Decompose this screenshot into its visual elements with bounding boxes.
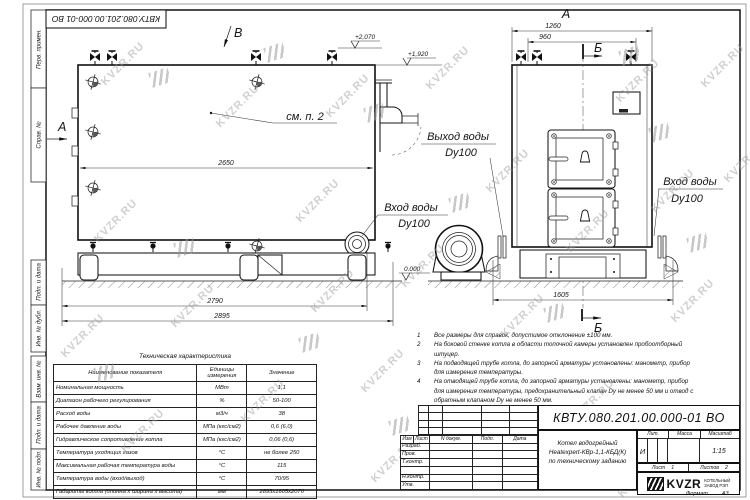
sheets-value: 2	[725, 465, 728, 471]
param-name: Габариты котла (длинна х ширина х высота…	[54, 486, 197, 499]
note-text: На боковой стенке котла в области топочн…	[434, 340, 695, 359]
note-item: 3На подводящей трубе котла, до запорной …	[417, 359, 695, 378]
tech-col-header: Единицы измерения	[197, 365, 247, 382]
param-unit: МПа (кгс/см2)	[197, 434, 247, 447]
hinge	[613, 142, 618, 149]
water-outlet-label: Выход воды	[427, 131, 489, 143]
product-name-line: Heatexpert-КВр-1,1-КБД(К)	[539, 448, 636, 457]
top-stamp-number: КВТУ.080.201.00.000-01 ВО	[51, 14, 160, 24]
rev-header: Лист	[413, 436, 429, 444]
ground-hatch	[62, 281, 402, 288]
front-view-title: А	[561, 7, 570, 21]
inlet-nozzle	[658, 236, 678, 279]
param-unit: мм	[197, 486, 247, 499]
product-name-line: Котел водогрейный	[539, 439, 636, 448]
note-text: На подводящей трубе котла, до запорной а…	[434, 359, 695, 378]
company-name-line: ЗАВОД РЭП	[704, 484, 730, 489]
note-number: 1	[417, 331, 434, 340]
frame-label-sprav: Справ. №	[36, 121, 43, 149]
table-row: Максимальная рабочая температура воды°С1…	[54, 460, 317, 473]
elevation-2070: +2,070	[355, 34, 375, 41]
dim-960: 960	[539, 34, 551, 41]
param-name: Номинальная мощность	[54, 382, 197, 395]
sheet-value: 1	[671, 465, 674, 471]
format-value: А3	[722, 491, 729, 497]
hinge	[613, 201, 618, 208]
dim-1605: 1605	[553, 292, 569, 299]
sheet-label: Лист	[652, 465, 665, 471]
scale-header: Масштаб	[701, 431, 739, 438]
revision-extension	[418, 405, 538, 435]
tech-table-title: Техническая характеристика	[53, 353, 317, 360]
table-row: Диапазон рабочего регулирования%50-100	[54, 395, 317, 408]
water-outlet-dy: Dy100	[445, 147, 478, 159]
note-number: 3	[417, 359, 434, 378]
notes-list: 1Все размеры для справок, допустимое отк…	[417, 331, 695, 405]
table-row: Температура воды (вход/выход)°С70/95	[54, 473, 317, 486]
role-label: Пров.	[401, 451, 430, 459]
format-label: Формат	[686, 491, 708, 497]
note-number: 4	[417, 377, 434, 405]
rev-header: Изм	[401, 436, 414, 444]
format-note: Формат А3	[686, 491, 729, 497]
param-name: Расход воды	[54, 408, 197, 421]
dim-1260: 1260	[545, 23, 561, 30]
tech-col-header: Значение	[247, 365, 317, 382]
frame-label-perv: Перв. примен.	[37, 29, 43, 69]
doc-number: КВТУ.080.201.00.000-01 ВО	[538, 405, 740, 430]
note-text: Все размеры для справок, допустимое откл…	[434, 331, 612, 340]
table-row: Гидравлическое сопротивление котлаМПа (к…	[54, 434, 317, 447]
hinge	[613, 169, 618, 176]
role-label: Т.контр.	[401, 459, 430, 467]
param-value: 0,6 (6,0)	[247, 421, 317, 434]
company-logo-icon	[647, 477, 664, 491]
inlet-flange	[345, 232, 369, 256]
water-inlet-dy: Dy100	[398, 218, 431, 230]
scale-value: 1:15	[700, 439, 738, 463]
drain-valve-icon	[90, 243, 96, 253]
door-handle	[549, 216, 568, 220]
valve-icon	[516, 51, 526, 65]
param-unit: °С	[197, 447, 247, 460]
param-value: 115	[247, 460, 317, 473]
tech-col-header: Наименование показателя	[54, 365, 197, 382]
table-row: Рабочее давление водыМПа (кгс/см2)0,6 (6…	[54, 421, 317, 434]
param-unit: %	[197, 395, 247, 408]
drain-valve-icon	[225, 243, 231, 253]
note-item: 2На боковой стенке котла в области топоч…	[417, 340, 695, 359]
furnace-door-upper	[548, 130, 618, 188]
company-name: КОТЕЛЬНЫЙ ЗАВОД РЭП	[704, 479, 730, 489]
product-name: Котел водогрейный Heatexpert-КВр-1,1-КБД…	[538, 430, 637, 490]
valve-icon	[327, 51, 337, 65]
boiler-front-view	[486, 51, 678, 308]
frame-side-strip: Перв. примен. Справ. № Подп. и дата Инв.…	[31, 10, 46, 490]
rev-header: Подп.	[473, 436, 503, 444]
param-unit: °С	[197, 460, 247, 473]
mass-header: Масса	[669, 431, 701, 438]
role-label: Разраб.	[401, 443, 430, 451]
param-value: 2895х1605х2070	[247, 486, 317, 499]
dim-2650: 2650	[217, 160, 234, 167]
company-logo-text: KVZR	[667, 477, 702, 491]
note-item: 4На отводящей трубе котла, до запорной а…	[417, 377, 695, 405]
rev-header: N докум.	[429, 436, 472, 444]
title-block: КВТУ.080.201.00.000-01 ВО Изм Лист N док…	[400, 405, 740, 490]
valve-icon	[251, 51, 261, 65]
param-unit: °С	[197, 473, 247, 486]
param-name: Диапазон рабочего регулирования	[54, 395, 197, 408]
view-a-arrow-label: А	[57, 120, 66, 134]
dim-2790: 2790	[206, 298, 223, 305]
note-text: На отводящей трубе котла, до запорной ар…	[434, 377, 695, 405]
ground-hatch	[428, 281, 683, 288]
drawing-sheet: KVZR.RU KVZR.RU KVZR.RU KVZR.RU KVZR.RU …	[0, 0, 750, 500]
table-row: Расход водым3/ч38	[54, 408, 317, 421]
role-label: Н.контр.	[401, 474, 430, 482]
param-name: Температура воды (вход/выход)	[54, 473, 197, 486]
outlet-nozzle	[486, 236, 506, 279]
drain-valve-icon	[385, 243, 391, 253]
param-value: не более 250	[247, 447, 317, 460]
frame-label-invpodl: Инв. № подл.	[36, 450, 43, 487]
frame-label-podp2: Подп. и дата	[37, 406, 43, 444]
frame-label-vzam: Взам. инв. №	[36, 360, 43, 398]
front-base	[520, 250, 646, 278]
door-handle	[549, 157, 568, 161]
valve-icon	[532, 51, 542, 65]
section-b-top-label: Б	[594, 41, 602, 55]
boiler-base	[78, 253, 375, 280]
view-v-arrow-label: В	[234, 26, 242, 40]
rev-header: Дата	[502, 436, 537, 444]
param-value: 0,06 (0,6)	[247, 434, 317, 447]
hinge	[613, 228, 618, 235]
role-label: Утв.	[401, 482, 430, 490]
signature-table: Изм Лист N докум. Подп. Дата Разраб. Про…	[400, 435, 538, 490]
note-item: 1Все размеры для справок, допустимое отк…	[417, 331, 695, 340]
frame-label-podp1: Подп. и дата	[37, 263, 43, 301]
param-name: Максимальная рабочая температура воды	[54, 460, 197, 473]
dim-2895: 2895	[213, 313, 230, 320]
see-note-label: см. п. 2	[286, 111, 323, 123]
param-name: Рабочее давление воды	[54, 421, 197, 434]
valve-icon	[90, 51, 100, 65]
sheet-count-row: Лист 1 Листов 2	[637, 463, 740, 472]
top-stamp: КВТУ.080.201.00.000-01 ВО	[46, 10, 166, 28]
table-row: Температура уходящих газов°Сне более 250	[54, 447, 317, 460]
param-unit: МПа (кгс/см2)	[197, 421, 247, 434]
water-inlet-label: Вход воды	[384, 202, 437, 214]
frame-label-invdubl: Инв. № дубл.	[36, 310, 43, 347]
table-row: Габариты котла (длинна х ширина х высота…	[54, 486, 317, 499]
param-unit: МВт	[197, 382, 247, 395]
product-name-line: по техническому заданию	[539, 457, 636, 466]
elevation-1920: +1,920	[408, 51, 428, 58]
lit-value: И	[638, 439, 648, 463]
lit-mass-scale: Лит. Масса Масштаб И 1:15	[637, 430, 740, 463]
drain-valve-icon	[150, 243, 156, 253]
note-number: 2	[417, 340, 434, 359]
lit-header: Лит.	[638, 431, 669, 438]
role-label	[401, 466, 430, 474]
param-unit: м3/ч	[197, 408, 247, 421]
sheets-label: Листов	[700, 465, 719, 471]
param-value: 70/95	[247, 473, 317, 486]
